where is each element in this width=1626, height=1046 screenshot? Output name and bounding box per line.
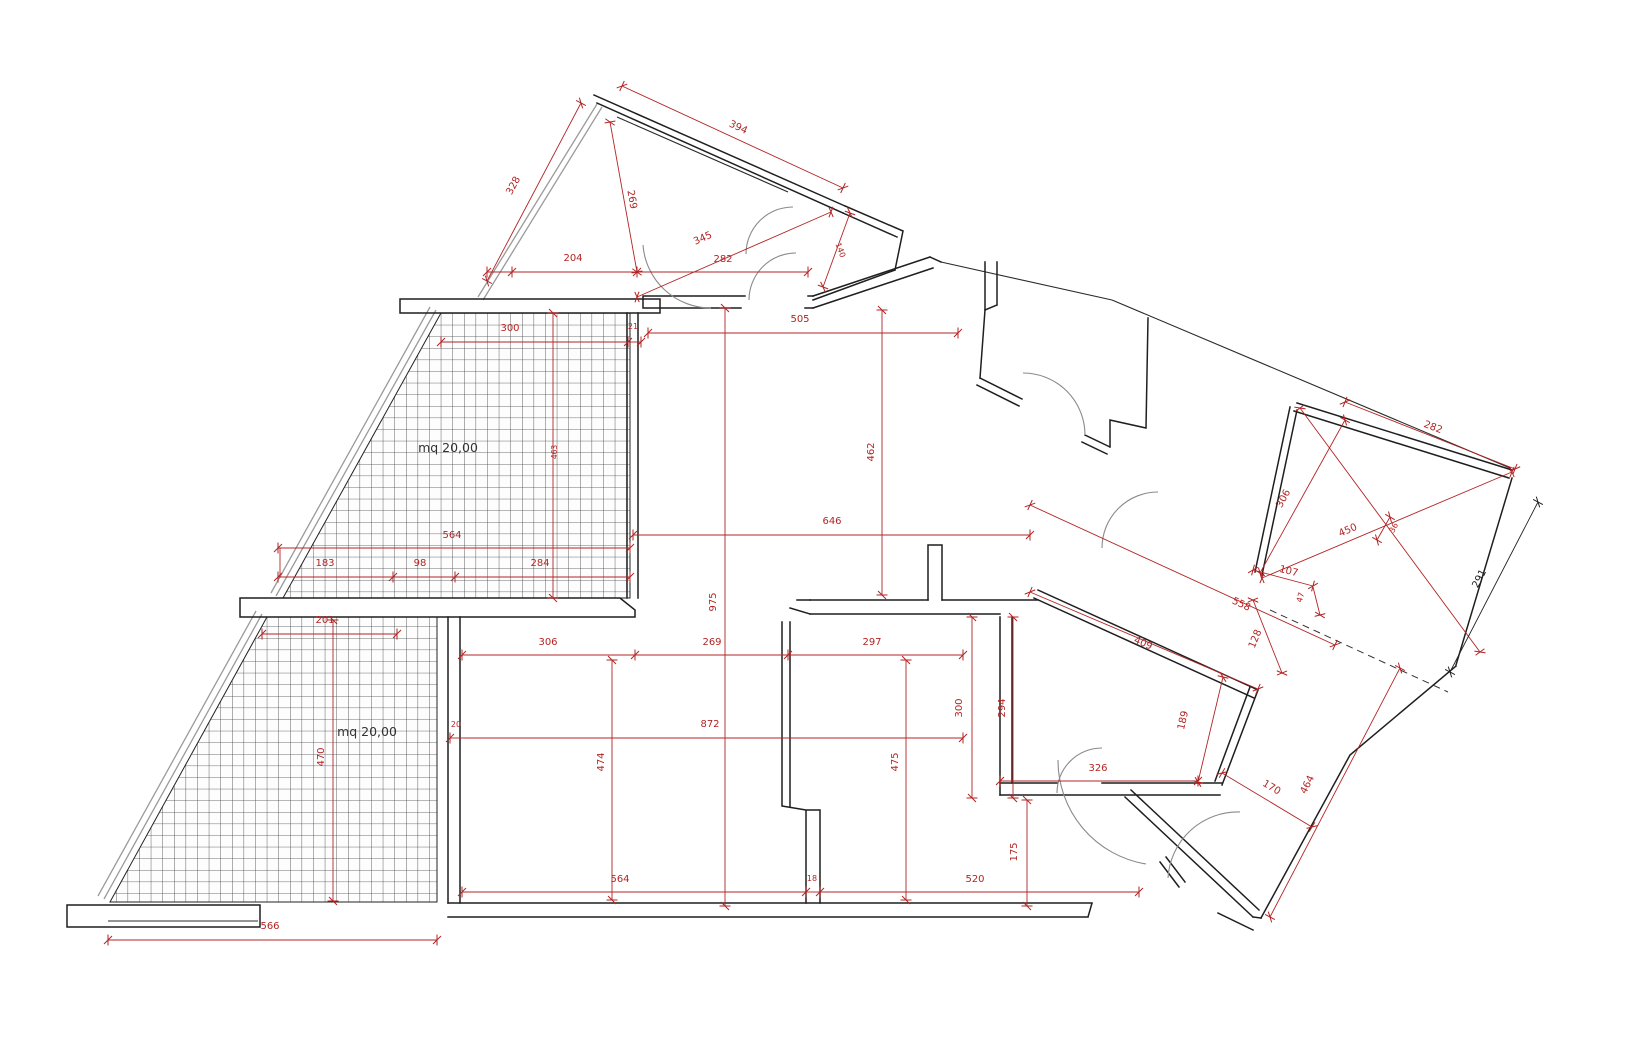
dim-wing-width: 326 (1088, 763, 1107, 774)
dim-kitchen-height: 300 (954, 698, 965, 717)
dim-terr1-seg3: 284 (530, 558, 549, 569)
dim-bottom-seg1: 564 (610, 874, 629, 885)
dim-terr1-wall: 21 (628, 322, 638, 331)
dim-hall-width: 269 (702, 637, 721, 648)
dim-lower-width: 872 (700, 719, 719, 730)
dim-room2-width: 297 (862, 637, 881, 648)
dim-entry-width: 505 (790, 314, 809, 325)
dim-terr1-seg2: 98 (414, 558, 427, 569)
dim-bottom-wall: 18 (807, 874, 817, 883)
upper-terrace-area-label: mq 20,00 (418, 440, 478, 455)
dim-triangle-base-left: 204 (563, 253, 582, 264)
dim-bottom-seg3: 175 (1009, 842, 1020, 861)
dim-bottom-seg2: 520 (965, 874, 984, 885)
dim-kitchen-height2: 294 (997, 698, 1008, 717)
dim-lower-wall: 20 (451, 720, 461, 729)
dim-room2-height: 475 (890, 752, 901, 771)
dim-room1-width: 306 (538, 637, 557, 648)
dim-terr2-top: 201 (315, 615, 334, 626)
dim-terr2-bottom: 566 (260, 921, 279, 932)
floor-plan-canvas: 328 394 269 204 345 282 140 505 462 646 … (0, 0, 1626, 1046)
dim-terr1-width: 564 (442, 530, 461, 541)
lower-terrace-area-label: mq 20,00 (337, 724, 397, 739)
dim-terr1-seg1: 183 (315, 558, 334, 569)
dim-entry-height: 462 (866, 442, 877, 461)
dim-terr2-height: 470 (316, 747, 327, 766)
dim-triangle-base-right: 282 (713, 254, 732, 265)
dim-terr1-height: 463 (550, 445, 559, 460)
dim-total-height: 975 (708, 592, 719, 611)
dim-terr1-top: 300 (500, 323, 519, 334)
dim-room1-height: 474 (596, 752, 607, 771)
dim-living-width: 646 (822, 516, 841, 527)
